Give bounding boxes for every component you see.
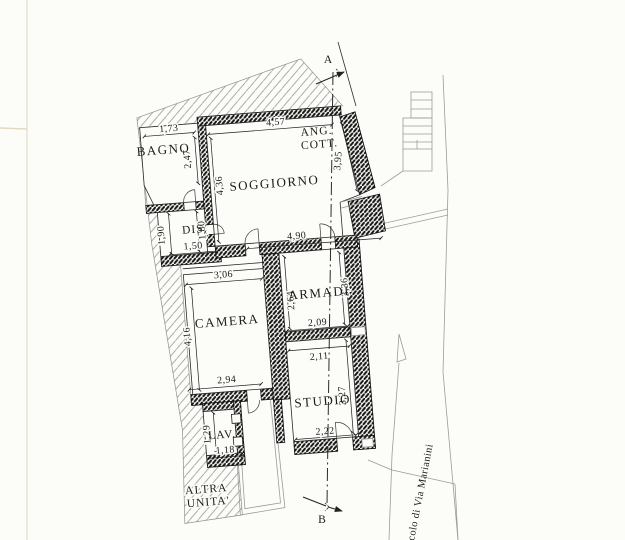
- dim-label: 2,11: [309, 351, 329, 363]
- dim-label: 3,95: [332, 151, 344, 171]
- apartment-plan: 1,73 4,57 2,47 4,36 3,95 1,90 1,80 1,50 …: [130, 53, 407, 525]
- room-label-dis: DIS.: [182, 223, 208, 237]
- dim-label: 1,18: [215, 444, 235, 456]
- dim-label: 1,50: [183, 240, 203, 252]
- lav-door-panel: [231, 414, 241, 424]
- wall-bagno-south: [196, 201, 205, 210]
- dim-label: 4,36: [214, 176, 226, 196]
- room-bagno: [140, 123, 204, 205]
- street-label: colo di Via Marianini: [406, 443, 436, 540]
- section-marker-a: A: [316, 54, 344, 84]
- section-marker-b: B: [303, 497, 342, 526]
- floor-plan-drawing: colo di Via Marianini: [0, 0, 625, 540]
- scan-artifacts: [0, 0, 27, 540]
- wall-east-corner: [348, 194, 386, 239]
- wall-camera-south: [261, 388, 274, 400]
- site-line: [368, 460, 392, 470]
- dim-label: 2,09: [308, 317, 328, 329]
- dim-label: 1,73: [159, 123, 179, 135]
- slope-arrow: [397, 334, 406, 362]
- wall-corridor-studio: [273, 399, 284, 442]
- dim-label: 2,22: [315, 425, 335, 437]
- site-line: [338, 42, 356, 106]
- section-label-a: A: [324, 54, 333, 66]
- boundary-line-right: [443, 75, 458, 540]
- wall-sogg-south: [335, 235, 358, 249]
- scanned-floor-plan-page: colo di Via Marianini: [0, 0, 625, 540]
- dim-label: 3,06: [214, 269, 234, 281]
- room-label-ang: ANG.: [300, 125, 333, 139]
- dim-label: 4,57: [266, 116, 286, 128]
- staircase: [381, 92, 432, 186]
- dim-label: 1,90: [155, 225, 167, 245]
- dim-label: 4,16: [181, 327, 193, 347]
- room-label-lav: LAV.: [208, 428, 236, 442]
- section-label-b: B: [318, 514, 326, 526]
- site-line: [389, 363, 399, 540]
- dim-label: 4,90: [287, 230, 307, 242]
- dim-label: 2,94: [217, 374, 237, 386]
